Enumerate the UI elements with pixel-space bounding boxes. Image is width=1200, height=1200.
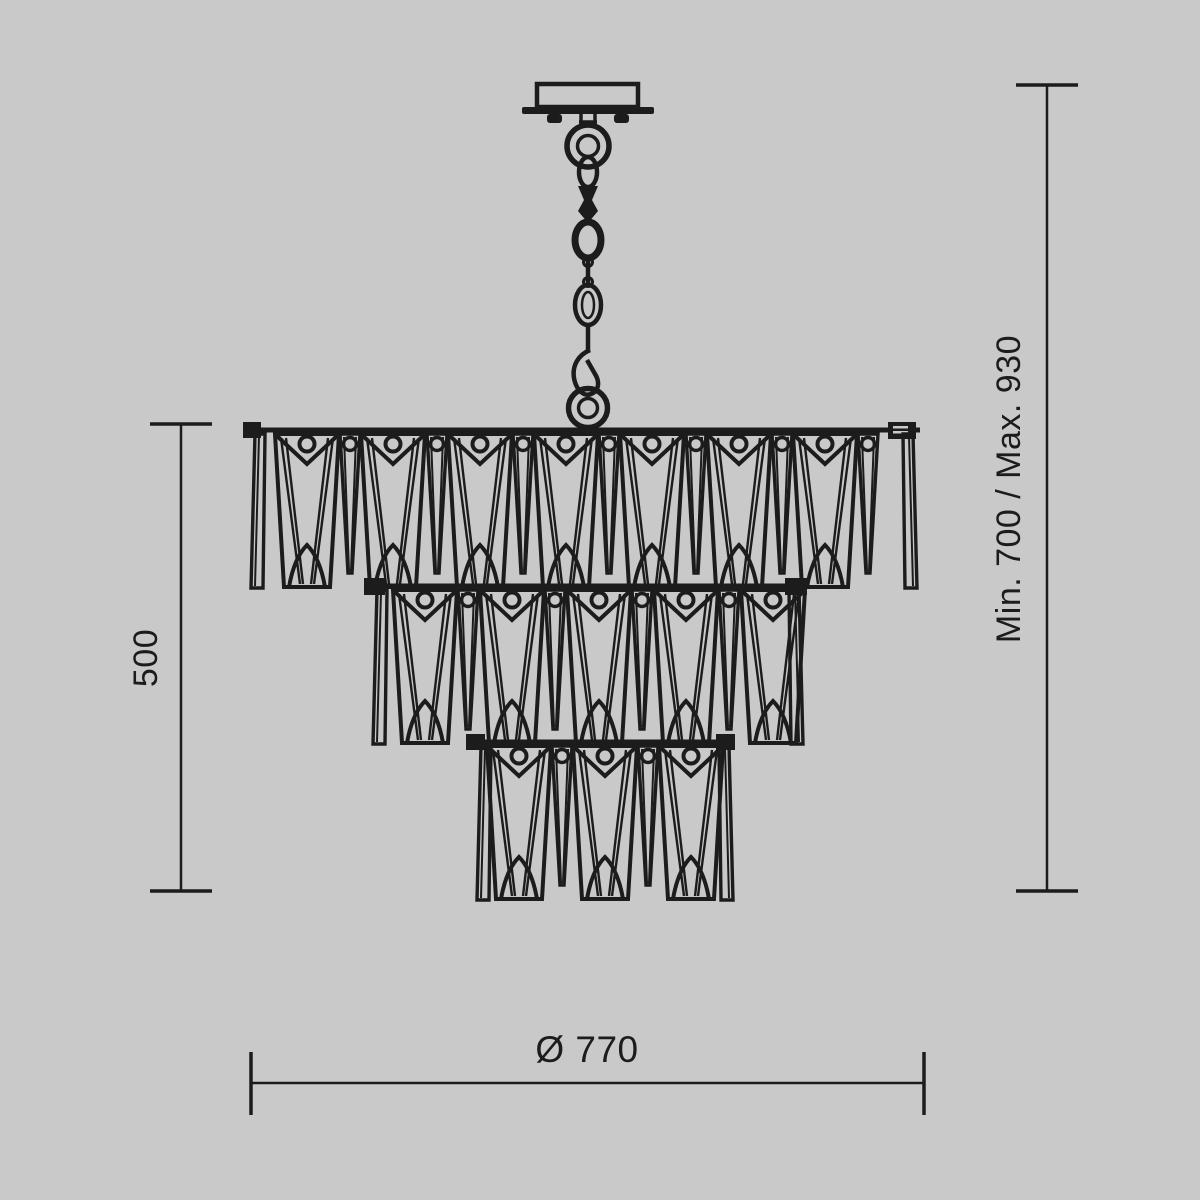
crystal-tier-1 <box>243 422 920 588</box>
wide-crystal <box>741 590 805 743</box>
narrow-crystal <box>513 434 533 573</box>
wide-crystal <box>534 434 598 587</box>
narrow-crystal <box>552 746 572 885</box>
diameter-dimension: Ø 770 <box>251 1029 924 1115</box>
wide-crystal <box>487 746 551 899</box>
wide-crystal <box>793 434 857 587</box>
narrow-crystal <box>545 590 565 729</box>
chain-link <box>575 222 601 258</box>
canopy-foot-right <box>614 114 629 123</box>
side-crystal <box>373 590 387 744</box>
crystal-tier-3 <box>466 734 735 900</box>
narrow-crystal <box>719 590 739 729</box>
ceiling-canopy <box>522 84 654 127</box>
wide-crystal <box>448 434 512 587</box>
narrow-crystal <box>858 434 878 573</box>
wide-crystal <box>393 590 457 743</box>
wide-crystal <box>361 434 425 587</box>
wide-crystal <box>275 434 339 587</box>
wide-crystal <box>659 746 723 899</box>
drawing-canvas: 500 Min. 700 / Max. 930 Ø 770 <box>0 0 1200 1200</box>
wide-crystal <box>573 746 637 899</box>
chandelier-dimension-drawing: 500 Min. 700 / Max. 930 Ø 770 <box>0 0 1200 1200</box>
diameter-label: Ø 770 <box>535 1029 638 1070</box>
wide-crystal <box>567 590 631 743</box>
body-height-dimension: 500 <box>127 424 212 891</box>
narrow-crystal <box>632 590 652 729</box>
narrow-crystal <box>427 434 447 573</box>
canopy-plate <box>522 107 654 114</box>
narrow-crystal <box>638 746 658 885</box>
side-crystal <box>903 434 917 588</box>
chain-link <box>579 157 597 187</box>
wide-crystal <box>480 590 544 743</box>
wide-crystal <box>654 590 718 743</box>
narrow-crystal <box>686 434 706 573</box>
crystal-tier-2 <box>364 578 807 744</box>
body-height-label: 500 <box>127 629 165 687</box>
page: { "dimensions": { "body_height": "500", … <box>0 0 1200 1200</box>
narrow-crystal <box>458 590 478 729</box>
canopy-box <box>537 84 638 107</box>
suspension-height-label: Min. 700 / Max. 930 <box>990 335 1028 643</box>
suspension-height-dimension: Min. 700 / Max. 930 <box>990 85 1078 891</box>
top-ring <box>567 125 609 167</box>
side-crystal <box>251 434 265 588</box>
suspension-chain <box>567 125 609 428</box>
chain-clevis <box>578 186 598 223</box>
wide-crystal <box>707 434 771 587</box>
wide-crystal <box>620 434 684 587</box>
canopy-foot-left <box>547 114 562 123</box>
narrow-crystal <box>599 434 619 573</box>
narrow-crystal <box>772 434 792 573</box>
narrow-crystal <box>340 434 360 573</box>
